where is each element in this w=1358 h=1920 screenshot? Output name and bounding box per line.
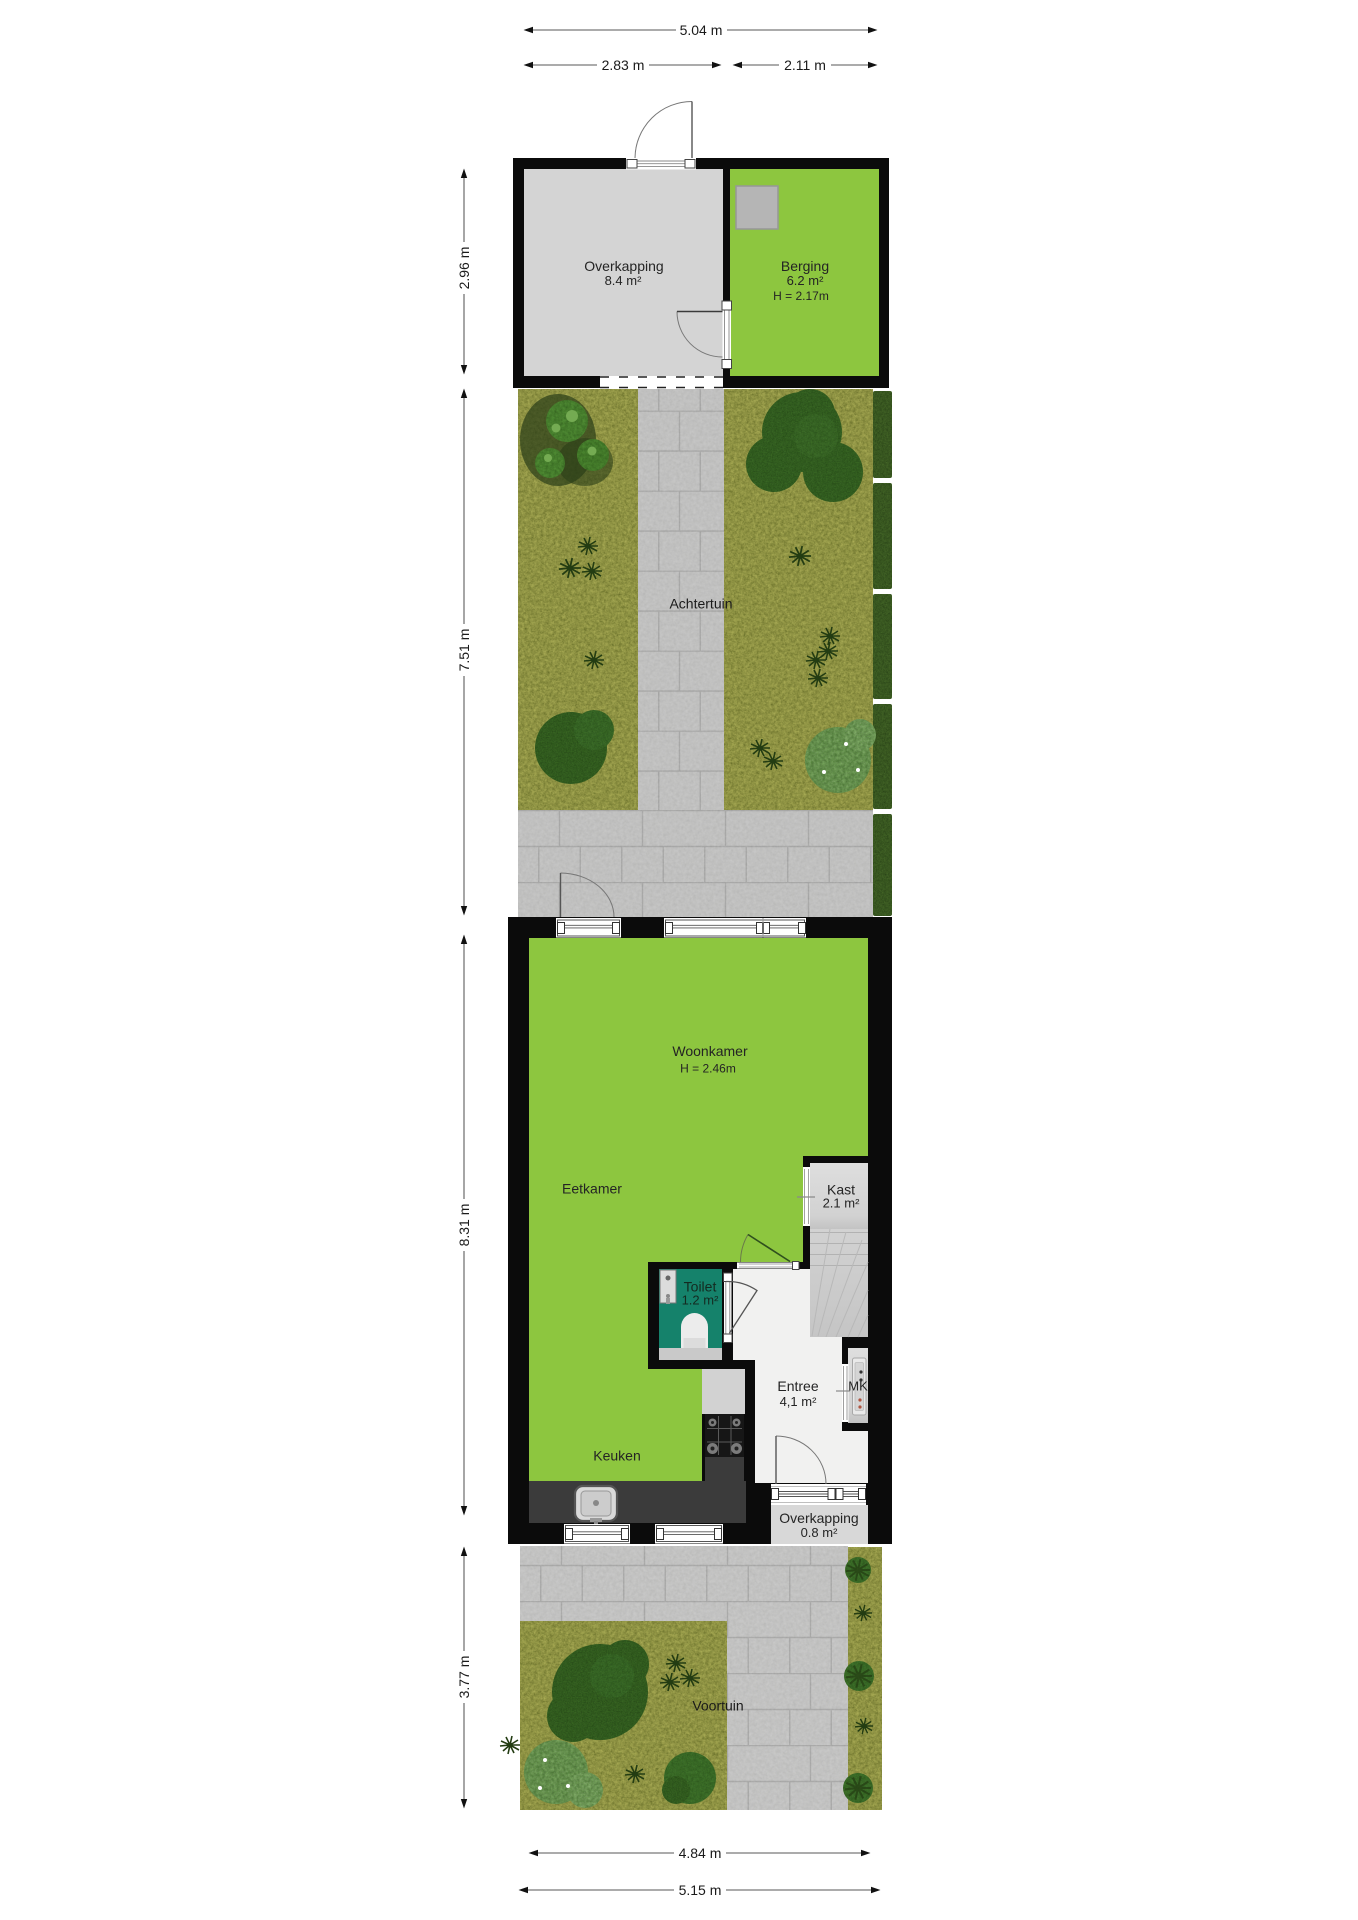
svg-text:8.4 m²: 8.4 m² — [605, 273, 643, 288]
svg-text:Voortuin: Voortuin — [692, 1698, 743, 1714]
svg-text:2.1 m²: 2.1 m² — [823, 1196, 861, 1211]
svg-text:Entree: Entree — [777, 1378, 818, 1394]
svg-text:Eetkamer: Eetkamer — [562, 1181, 622, 1197]
svg-text:5.04 m: 5.04 m — [680, 22, 723, 38]
svg-text:7.51 m: 7.51 m — [456, 629, 472, 672]
svg-text:1.2 m²: 1.2 m² — [682, 1293, 720, 1308]
svg-text:MK: MK — [848, 1379, 868, 1394]
svg-text:Overkapping: Overkapping — [779, 1510, 858, 1526]
svg-text:Achtertuin: Achtertuin — [669, 596, 732, 612]
svg-text:5.15 m: 5.15 m — [679, 1882, 722, 1898]
svg-text:2.11 m: 2.11 m — [784, 57, 826, 73]
svg-text:Woonkamer: Woonkamer — [672, 1043, 748, 1059]
svg-text:3.77 m: 3.77 m — [456, 1656, 472, 1699]
svg-text:Berging: Berging — [781, 258, 829, 274]
svg-text:2.96 m: 2.96 m — [456, 247, 472, 290]
svg-text:H = 2.17m: H = 2.17m — [773, 289, 829, 303]
svg-text:Overkapping: Overkapping — [584, 258, 663, 274]
svg-text:8.31 m: 8.31 m — [456, 1204, 472, 1247]
svg-text:4.84 m: 4.84 m — [679, 1845, 722, 1861]
svg-text:6.2 m²: 6.2 m² — [787, 273, 825, 288]
svg-text:2.83 m: 2.83 m — [602, 57, 645, 73]
svg-text:H = 2.46m: H = 2.46m — [680, 1062, 736, 1076]
svg-text:0.8 m²: 0.8 m² — [801, 1525, 839, 1540]
svg-text:Keuken: Keuken — [593, 1448, 640, 1464]
svg-text:4,1 m²: 4,1 m² — [780, 1394, 818, 1409]
